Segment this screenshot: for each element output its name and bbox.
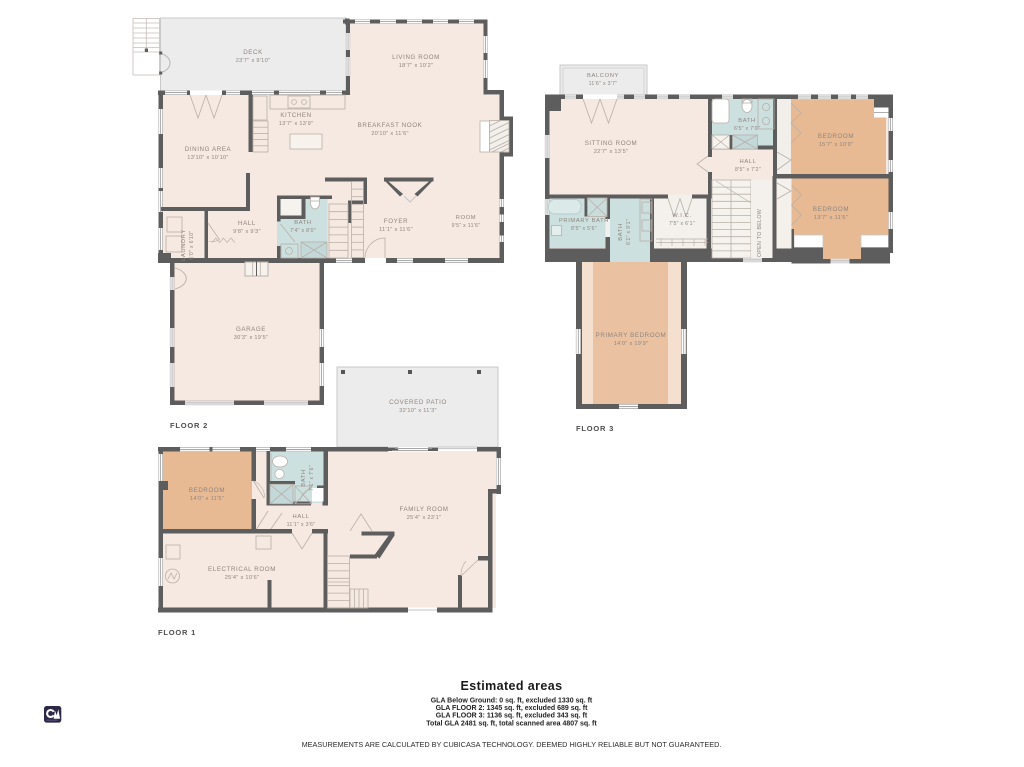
svg-text:6'0" x 6'10": 6'0" x 6'10"	[189, 230, 195, 259]
svg-text:18'7" x 10'2": 18'7" x 10'2"	[399, 63, 434, 69]
svg-text:HALL: HALL	[740, 159, 757, 165]
svg-text:7'4" x 8'0": 7'4" x 8'0"	[290, 228, 316, 234]
svg-text:MEASUREMENTS ARE CALCULATED BY: MEASUREMENTS ARE CALCULATED BY CUBICASA …	[302, 740, 722, 749]
svg-text:KITCHEN: KITCHEN	[280, 112, 311, 119]
svg-text:BATH: BATH	[294, 220, 311, 226]
svg-text:BREAKFAST NOOK: BREAKFAST NOOK	[358, 122, 423, 129]
svg-text:GLA FLOOR 3: 1136 sq. ft, excl: GLA FLOOR 3: 1136 sq. ft, excluded 343 s…	[436, 713, 588, 720]
svg-text:ELECTRICAL ROOM: ELECTRICAL ROOM	[208, 566, 276, 573]
svg-text:PRIMARY BATH: PRIMARY BATH	[559, 218, 609, 224]
svg-text:FLOOR 2: FLOOR 2	[170, 421, 208, 430]
svg-text:BEDROOM: BEDROOM	[818, 133, 854, 140]
svg-text:Total GLA 2481 sq. ft, total s: Total GLA 2481 sq. ft, total scanned are…	[426, 720, 597, 727]
svg-text:GLA FLOOR 2: 1345 sq. ft, excl: GLA FLOOR 2: 1345 sq. ft, excluded 689 s…	[436, 705, 589, 712]
svg-text:11'6" x 3'7": 11'6" x 3'7"	[589, 81, 618, 87]
svg-text:LIVING ROOM: LIVING ROOM	[392, 54, 440, 61]
svg-text:30'3" x 19'5": 30'3" x 19'5"	[234, 335, 269, 341]
svg-text:25'4" x 23'1": 25'4" x 23'1"	[407, 515, 442, 521]
svg-text:GLA Below Ground: 0 sq. ft, ex: GLA Below Ground: 0 sq. ft, excluded 133…	[431, 698, 593, 705]
svg-text:6'1" x 9'1": 6'1" x 9'1"	[626, 219, 632, 245]
svg-text:BATH: BATH	[301, 469, 307, 486]
svg-text:OPEN TO BELOW: OPEN TO BELOW	[757, 209, 763, 257]
svg-text:13'10" x 10'10": 13'10" x 10'10"	[187, 155, 228, 161]
svg-text:8'5" x 7'2": 8'5" x 7'2"	[735, 167, 761, 173]
svg-text:GARAGE: GARAGE	[236, 326, 266, 333]
svg-text:20'10" x 11'6": 20'10" x 11'6"	[371, 131, 409, 137]
svg-text:SITTING ROOM: SITTING ROOM	[585, 140, 638, 147]
svg-text:DECK: DECK	[243, 49, 263, 56]
svg-text:COVERED PATIO: COVERED PATIO	[389, 399, 447, 406]
svg-text:13'7" x 13'9": 13'7" x 13'9"	[279, 121, 314, 127]
svg-text:HALL: HALL	[293, 514, 310, 520]
svg-text:6'5" x 7'0": 6'5" x 7'0"	[734, 126, 760, 132]
svg-text:BATH: BATH	[618, 223, 624, 240]
svg-text:BEDROOM: BEDROOM	[813, 206, 849, 213]
svg-text:DINING AREA: DINING AREA	[185, 146, 232, 153]
svg-text:BATH: BATH	[738, 118, 755, 124]
svg-text:BEDROOM: BEDROOM	[189, 487, 225, 494]
svg-text:7'5" x 6'1": 7'5" x 6'1"	[669, 221, 695, 227]
svg-text:PRIMARY BEDROOM: PRIMARY BEDROOM	[596, 332, 667, 339]
svg-text:BALCONY: BALCONY	[587, 73, 619, 79]
svg-text:FAMILY ROOM: FAMILY ROOM	[399, 506, 448, 513]
svg-text:7'1" x 7'6": 7'1" x 7'6"	[309, 465, 315, 491]
svg-text:13'7" x 11'6": 13'7" x 11'6"	[814, 215, 848, 221]
svg-text:15'7" x 10'9": 15'7" x 10'9"	[819, 142, 854, 148]
svg-text:Estimated areas: Estimated areas	[461, 679, 563, 693]
svg-text:25'4" x 10'6": 25'4" x 10'6"	[225, 575, 260, 581]
svg-text:32'10" x 11'3": 32'10" x 11'3"	[399, 408, 437, 414]
svg-text:9'5" x 11'6": 9'5" x 11'6"	[452, 223, 481, 229]
svg-text:ROOM: ROOM	[456, 215, 476, 221]
svg-text:FLOOR 1: FLOOR 1	[158, 628, 196, 637]
svg-text:HALL: HALL	[238, 220, 256, 227]
svg-text:9'8" x 9'3": 9'8" x 9'3"	[233, 229, 261, 235]
svg-text:11'1" x 3'6": 11'1" x 3'6"	[287, 522, 316, 528]
svg-text:8'5" x 5'6": 8'5" x 5'6"	[571, 226, 597, 232]
svg-text:11'1" x 11'6": 11'1" x 11'6"	[379, 227, 413, 233]
svg-text:LAUNDRY: LAUNDRY	[181, 229, 187, 261]
svg-text:14'0" x 19'9": 14'0" x 19'9"	[614, 341, 649, 347]
svg-text:14'0" x 11'5": 14'0" x 11'5"	[190, 496, 224, 502]
svg-text:FLOOR 3: FLOOR 3	[576, 424, 614, 433]
svg-text:22'7" x 13'5": 22'7" x 13'5"	[594, 149, 629, 155]
svg-text:W.I.C.: W.I.C.	[672, 213, 691, 219]
svg-text:FOYER: FOYER	[384, 218, 408, 225]
svg-text:23'7" x 9'10": 23'7" x 9'10"	[236, 58, 271, 64]
